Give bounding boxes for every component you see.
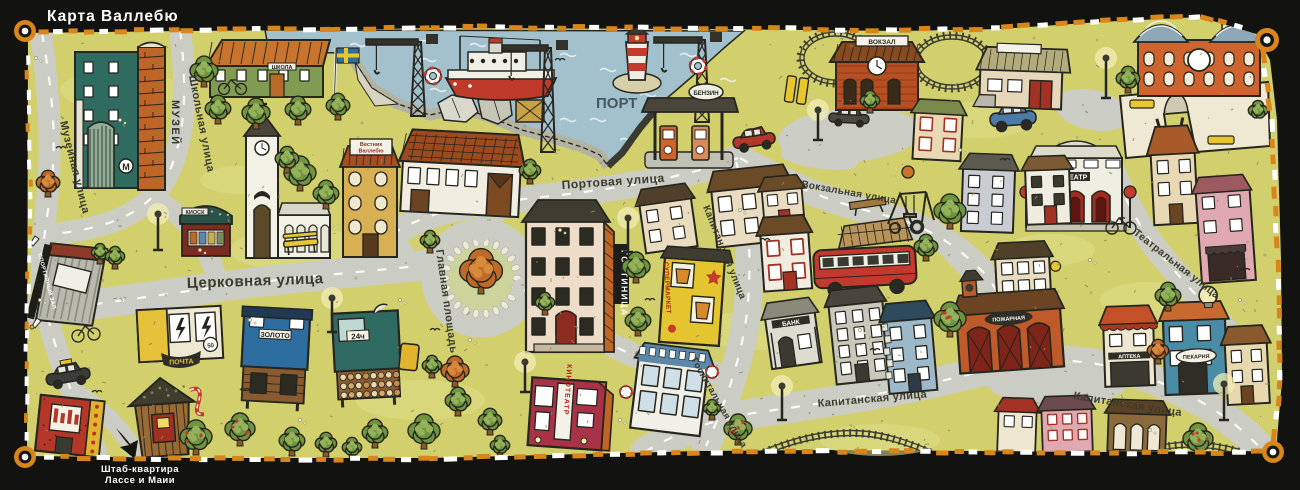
svg-text:М: М [122,162,130,172]
svg-text:АПТЕКА: АПТЕКА [1118,354,1140,361]
svg-text:24ч: 24ч [351,332,365,342]
svg-text:ПОЧТА: ПОЧТА [169,358,194,366]
svg-text:ВОКЗАЛ: ВОКЗАЛ [868,39,896,46]
svg-text:Карта Валлебю: Карта Валлебю [47,8,179,25]
svg-text:ПОРТ: ПОРТ [596,95,637,112]
svg-text:БЕНЗИН: БЕНЗИН [693,91,718,97]
svg-text:Штаб-квартира: Штаб-квартира [101,464,179,475]
svg-text:50: 50 [207,343,215,349]
svg-text:ШКОЛА: ШКОЛА [272,65,293,71]
svg-text:ПЕКАРНЯ: ПЕКАРНЯ [1183,354,1210,361]
svg-text:Валлебю: Валлебю [358,148,383,155]
svg-text:КИОСК: КИОСК [186,210,206,216]
svg-text:Лассе и Маии: Лассе и Маии [105,475,175,486]
svg-text:Вестник: Вестник [360,142,382,148]
svg-text:МУЗЕЙ: МУЗЕЙ [169,100,182,146]
